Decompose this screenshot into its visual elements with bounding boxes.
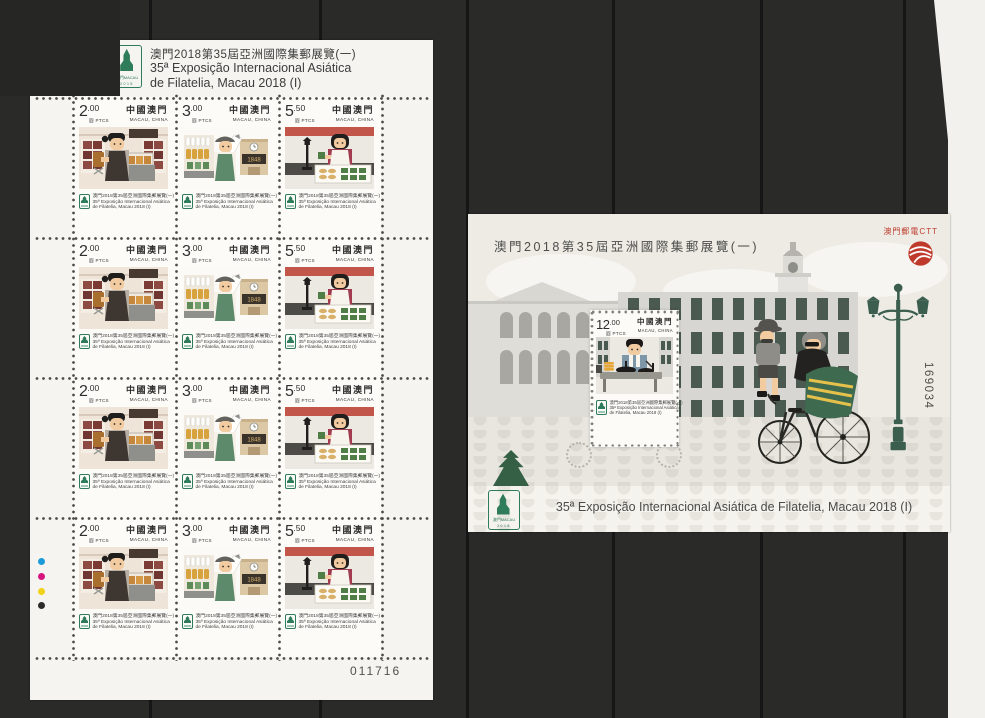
stamp-value: 5.50 圓 PTCS bbox=[285, 103, 315, 124]
currency-label: 圓 PTCS bbox=[192, 538, 212, 544]
currency-label: 圓 PTCS bbox=[295, 538, 315, 544]
stamp-caption: 澳門2018第35屆亞洲國際集郵展覽(一) 35ª Exposição Inte… bbox=[182, 614, 274, 631]
sheet-caption-text: 35ª Exposição Internacional Asiática de … bbox=[528, 500, 940, 514]
macau2018-arch-glyph bbox=[120, 49, 133, 72]
pane-title-pt-2: de Filatelia, Macau 2018 (I) bbox=[150, 76, 301, 90]
stamp-caption: 澳門2018第35屆亞洲國際集郵展覽(一) 35ª Exposição Inte… bbox=[79, 334, 171, 351]
stamp-2ptcs: 2.00 圓 PTCS 中國澳門 MACAU, CHINA bbox=[72, 237, 175, 377]
stamp-caption: 澳門2018第35屆亞洲國際集郵展覽(一) 35ª Exposição Inte… bbox=[596, 400, 675, 416]
souvenir-sheet: 12.00 圓 PTCS 中國澳門 MACAU, CHINA bbox=[468, 214, 950, 532]
stamp-value: 2.00 圓 PTCS bbox=[79, 243, 109, 264]
sheet-serial-number: 169034 bbox=[922, 362, 934, 409]
stamp-value: 5.50 圓 PTCS bbox=[285, 383, 315, 404]
stamp-illustration-pastry-shop bbox=[285, 407, 374, 469]
stamp-value: 2.00 圓 PTCS bbox=[79, 383, 109, 404]
registration-dot-yellow bbox=[38, 588, 45, 595]
perforation-line bbox=[278, 93, 281, 661]
stamp-5ptcs: 5.50 圓 PTCS 中國澳門 MACAU, CHINA bbox=[278, 237, 381, 377]
country-label: 中國澳門 MACAU, CHINA bbox=[126, 243, 168, 264]
perforation-line bbox=[34, 377, 429, 380]
stamp-row: 2.00 圓 PTCS 中國澳門 MACAU, CHINA bbox=[72, 237, 381, 377]
stamp-illustration-street-cook bbox=[596, 337, 673, 394]
stamp-illustration-dried-meat-shop bbox=[79, 267, 168, 329]
country-label: 中國澳門 MACAU, CHINA bbox=[229, 103, 271, 124]
stamp-caption: 澳門2018第35屆亞洲國際集郵展覽(一) 35ª Exposição Inte… bbox=[79, 194, 171, 211]
country-label: 中國澳門 MACAU, CHINA bbox=[332, 523, 374, 544]
shop-sign-text: 1848 bbox=[247, 438, 261, 444]
stamp-illustration-dried-meat-shop bbox=[79, 127, 168, 189]
macau2018-logo-icon bbox=[182, 194, 193, 209]
stamp-illustration-fishmonger: 1848 bbox=[182, 127, 271, 189]
stamp-5ptcs: 5.50 圓 PTCS 中國澳門 MACAU, CHINA bbox=[278, 517, 381, 657]
stamp-caption: 澳門2018第35屆亞洲國際集郵展覽(一) 35ª Exposição Inte… bbox=[182, 474, 274, 491]
perforation-line bbox=[34, 517, 429, 520]
shop-sign-text: 1848 bbox=[247, 578, 261, 584]
building-pediment bbox=[494, 282, 590, 301]
stamp-illustration-pastry-shop bbox=[285, 127, 374, 189]
macau2018-logo-icon bbox=[79, 194, 90, 209]
country-label: 中國澳門 MACAU, CHINA bbox=[126, 103, 168, 124]
stamp-illustration-pastry-shop bbox=[285, 547, 374, 609]
macau2018-logo-icon bbox=[285, 334, 296, 349]
stamp-value: 12.00 圓 PTCS bbox=[596, 316, 626, 337]
stamp-5ptcs: 5.50 圓 PTCS 中國澳門 MACAU, CHINA bbox=[278, 377, 381, 517]
macau2018-logo-icon bbox=[182, 334, 193, 349]
macau2018-logo-icon bbox=[285, 474, 296, 489]
macau2018-logo-icon bbox=[79, 614, 90, 629]
perforation-line bbox=[381, 93, 384, 661]
stamp-5ptcs: 5.50 圓 PTCS 中國澳門 MACAU, CHINA bbox=[278, 97, 381, 237]
stamp-value: 2.00 圓 PTCS bbox=[79, 523, 109, 544]
country-label: 中國澳門 MACAU, CHINA bbox=[126, 523, 168, 544]
country-label: 中國澳門 MACAU, CHINA bbox=[332, 383, 374, 404]
sheet-serial-number: 011716 bbox=[350, 664, 401, 678]
pane-title-pt-1: 35ª Exposição Internacional Asiática bbox=[150, 61, 351, 75]
trishaw-with-riders bbox=[746, 316, 871, 466]
stamp-illustration-fishmonger: 1848 bbox=[182, 547, 271, 609]
stockbook-page-scan: { "palette":{ "background":"#2a2a29","se… bbox=[0, 0, 985, 718]
macau2018-logo-icon bbox=[182, 474, 193, 489]
stamp-3ptcs: 3.00 圓 PTCS 中國澳門 MACAU, CHINA bbox=[175, 237, 278, 377]
stamp-caption: 澳門2018第35屆亞洲國際集郵展覽(一) 35ª Exposição Inte… bbox=[79, 474, 171, 491]
stamp-2ptcs: 2.00 圓 PTCS 中國澳門 MACAU, CHINA bbox=[72, 97, 175, 237]
perforation-line bbox=[34, 97, 429, 100]
macau2018-logo-icon bbox=[79, 474, 90, 489]
stamp-3ptcs: 3.00 圓 PTCS 中國澳門 MACAU, CHINA bbox=[175, 517, 278, 657]
stamp-row: 2.00 圓 PTCS 中國澳門 MACAU, CHINA bbox=[72, 377, 381, 517]
stamp-illustration-dried-meat-shop bbox=[79, 547, 168, 609]
stamp-value: 5.50 圓 PTCS bbox=[285, 523, 315, 544]
macau2018-logo-icon bbox=[285, 194, 296, 209]
stamp-caption: 澳門2018第35屆亞洲國際集郵展覽(一) 35ª Exposição Inte… bbox=[285, 614, 377, 631]
perforation-line bbox=[175, 93, 178, 661]
currency-label: 圓 PTCS bbox=[192, 118, 212, 124]
stamp-caption: 澳門2018第35屆亞洲國際集郵展覽(一) 35ª Exposição Inte… bbox=[285, 474, 377, 491]
stamp-caption: 澳門2018第35屆亞洲國際集郵展覽(一) 35ª Exposição Inte… bbox=[285, 194, 377, 211]
perforation-line bbox=[72, 93, 75, 661]
stamp-value: 3.00 圓 PTCS bbox=[182, 103, 212, 124]
perforation-line bbox=[34, 657, 429, 660]
page-edge-corner bbox=[925, 0, 955, 165]
post-operator-label: 澳門郵電CTT bbox=[883, 226, 938, 237]
macau2018-logo-icon bbox=[182, 614, 193, 629]
country-label: 中國澳門 MACAU, CHINA bbox=[229, 243, 271, 264]
country-label: 中國澳門 MACAU, CHINA bbox=[332, 243, 374, 264]
stamp-caption: 澳門2018第35屆亞洲國際集郵展覽(一) 35ª Exposição Inte… bbox=[182, 334, 274, 351]
macau2018-logo-icon bbox=[79, 334, 90, 349]
stamp-row: 2.00 圓 PTCS 中國澳門 MACAU, CHINA bbox=[72, 517, 381, 657]
currency-label: 圓 PTCS bbox=[89, 118, 109, 124]
currency-label: 圓 PTCS bbox=[192, 398, 212, 404]
macau2018-logo-icon: 澳門MACAU 2018 bbox=[488, 490, 520, 530]
currency-label: 圓 PTCS bbox=[89, 398, 109, 404]
sheet-title-zh: 澳門2018第35屆亞洲國際集郵展覽(一) bbox=[494, 236, 759, 255]
stamp-3ptcs: 3.00 圓 PTCS 中國澳門 MACAU, CHINA bbox=[175, 377, 278, 517]
souvenir-stamp-12ptcs: 12.00 圓 PTCS 中國澳門 MACAU, CHINA bbox=[590, 310, 679, 447]
macau2018-logo-icon bbox=[596, 400, 607, 415]
stamp-value: 3.00 圓 PTCS bbox=[182, 243, 212, 264]
stamp-caption: 澳門2018第35屆亞洲國際集郵展覽(一) 35ª Exposição Inte… bbox=[79, 614, 171, 631]
stamp-value: 5.50 圓 PTCS bbox=[285, 243, 315, 264]
country-label: 中國澳門 MACAU, CHINA bbox=[637, 316, 673, 337]
currency-label: 圓 PTCS bbox=[89, 538, 109, 544]
macau-post-logo-icon bbox=[907, 240, 934, 267]
stamp-illustration-fishmonger: 1848 bbox=[182, 407, 271, 469]
currency-label: 圓 PTCS bbox=[295, 258, 315, 264]
country-label: 中國澳門 MACAU, CHINA bbox=[332, 103, 374, 124]
stamp-illustration-fishmonger: 1848 bbox=[182, 267, 271, 329]
stamp-illustration-dried-meat-shop bbox=[79, 407, 168, 469]
registration-dot-black bbox=[38, 602, 45, 609]
country-label: 中國澳門 MACAU, CHINA bbox=[126, 383, 168, 404]
shop-sign-text: 1848 bbox=[247, 298, 261, 304]
currency-label: 圓 PTCS bbox=[192, 258, 212, 264]
registration-dot-magenta bbox=[38, 573, 45, 580]
stamp-row: 2.00 圓 PTCS 中國澳門 MACAU, CHINA bbox=[72, 97, 381, 237]
country-label: 中國澳門 MACAU, CHINA bbox=[229, 383, 271, 404]
stamp-2ptcs: 2.00 圓 PTCS 中國澳門 MACAU, CHINA bbox=[72, 377, 175, 517]
pane-title-zh: 澳門2018第35屆亞洲國際集郵展覽(一) bbox=[150, 46, 356, 62]
stamp-3ptcs: 3.00 圓 PTCS 中國澳門 MACAU, CHINA bbox=[175, 97, 278, 237]
stamp-2ptcs: 2.00 圓 PTCS 中國澳門 MACAU, CHINA bbox=[72, 517, 175, 657]
macau2018-logo-icon bbox=[285, 614, 296, 629]
stamp-caption: 澳門2018第35屆亞洲國際集郵展覽(一) 35ª Exposição Inte… bbox=[182, 194, 274, 211]
stamp-caption: 澳門2018第35屆亞洲國際集郵展覽(一) 35ª Exposição Inte… bbox=[285, 334, 377, 351]
country-label: 中國澳門 MACAU, CHINA bbox=[229, 523, 271, 544]
currency-label: 圓 PTCS bbox=[295, 118, 315, 124]
currency-label: 圓 PTCS bbox=[295, 398, 315, 404]
stamp-pane-sheet: 澳門MACAU 2018 澳門2018第35屆亞洲國際集郵展覽(一) 35ª E… bbox=[30, 40, 433, 700]
shop-sign-text: 1848 bbox=[247, 158, 261, 164]
sheet-caption-band: 澳門MACAU 2018 35ª Exposição Internacional… bbox=[468, 486, 950, 532]
stamp-value: 3.00 圓 PTCS bbox=[182, 383, 212, 404]
stamp-value: 3.00 圓 PTCS bbox=[182, 523, 212, 544]
stamp-illustration-pastry-shop bbox=[285, 267, 374, 329]
stamp-value: 2.00 圓 PTCS bbox=[79, 103, 109, 124]
perforation-line bbox=[34, 237, 429, 240]
mount-strip bbox=[0, 0, 120, 96]
pavement-rosette bbox=[566, 442, 592, 468]
currency-label: 圓 PTCS bbox=[89, 258, 109, 264]
registration-dot-cyan bbox=[38, 558, 45, 565]
